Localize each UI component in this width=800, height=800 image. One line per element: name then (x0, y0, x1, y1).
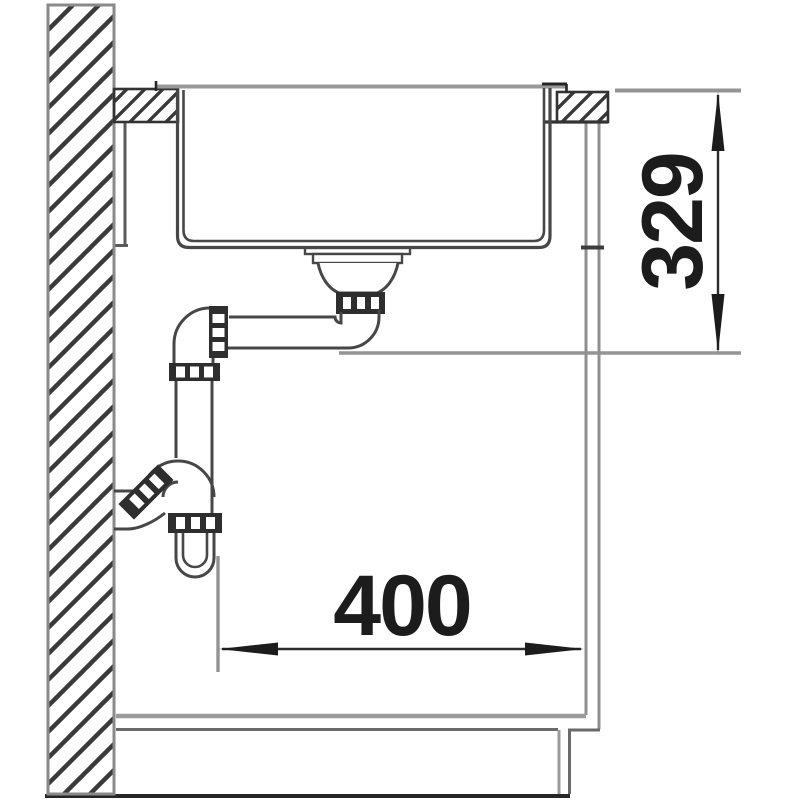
wall (48, 5, 114, 794)
strainer-bowl (318, 263, 398, 293)
worktop-right-block (557, 92, 608, 122)
wall-hatch (48, 5, 114, 794)
worktop-left-block (114, 89, 178, 122)
sink-installation-diagram: 329 400 (0, 0, 800, 800)
strainer-locknut-slots (343, 297, 379, 309)
pipe-nut-vertical (209, 306, 228, 358)
pipe-nut-horizontal (169, 363, 220, 381)
strainer-flange-lower (313, 254, 402, 263)
dimension-label-329: 329 (625, 153, 721, 291)
dimension-label-400: 400 (333, 558, 471, 654)
trap-u-bend-nut (168, 513, 222, 533)
technical-drawing-canvas: 329 400 (0, 0, 800, 800)
